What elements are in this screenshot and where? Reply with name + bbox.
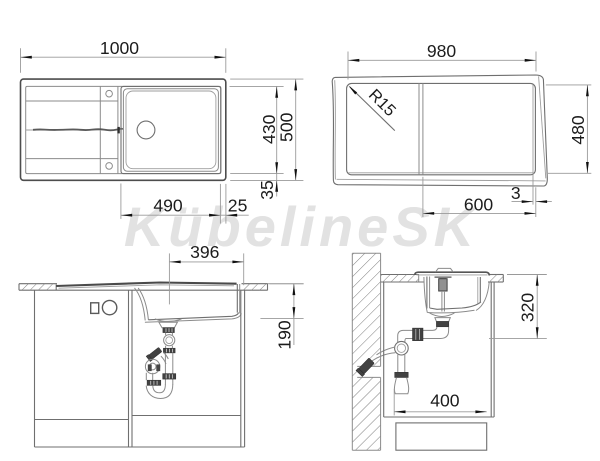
svg-text:600: 600	[464, 194, 494, 214]
svg-text:3: 3	[511, 183, 521, 203]
svg-text:35: 35	[257, 180, 277, 200]
svg-text:480: 480	[568, 115, 588, 145]
svg-text:320: 320	[518, 293, 538, 323]
svg-text:980: 980	[427, 41, 457, 61]
svg-text:396: 396	[190, 242, 220, 262]
svg-text:490: 490	[153, 195, 183, 215]
svg-text:190: 190	[275, 320, 295, 350]
svg-text:430: 430	[259, 114, 279, 144]
svg-text:400: 400	[430, 391, 460, 411]
svg-text:1000: 1000	[100, 38, 139, 58]
svg-text:500: 500	[276, 112, 296, 142]
svg-text:25: 25	[228, 195, 248, 215]
